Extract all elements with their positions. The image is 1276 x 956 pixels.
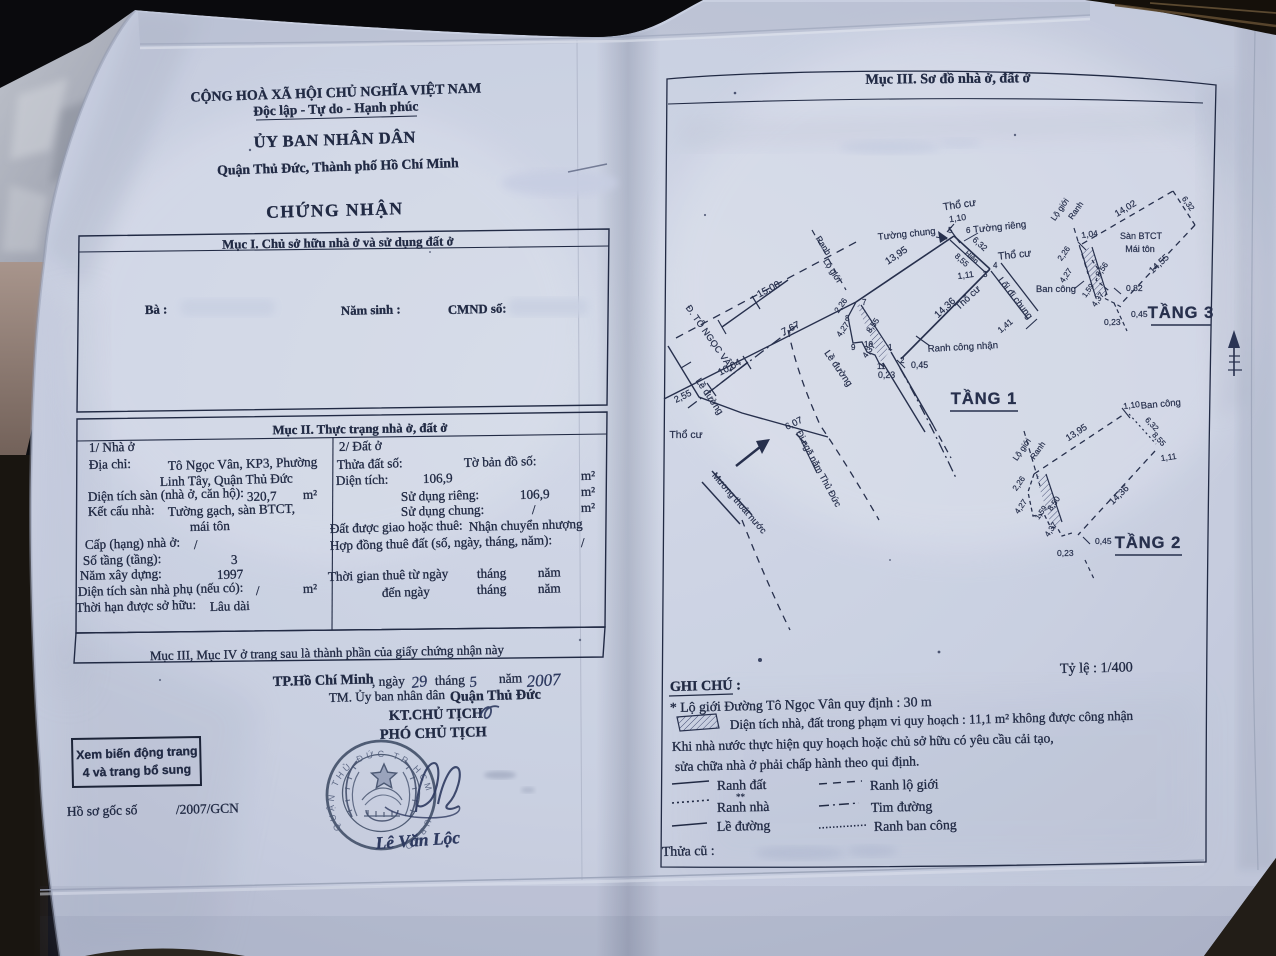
svg-text:Lâu dài: Lâu dài <box>210 598 251 614</box>
svg-text:Thửa đất số:: Thửa đất số: <box>337 455 403 472</box>
svg-text:TP.Hồ Chí Minh: TP.Hồ Chí Minh <box>273 671 374 690</box>
svg-text:m²: m² <box>581 484 596 499</box>
svg-text:3: 3 <box>231 552 238 567</box>
svg-text:Ranh đất: Ranh đất <box>717 777 767 793</box>
svg-text:TM. Ủy ban nhân dân: TM. Ủy ban nhân dân <box>329 687 446 705</box>
svg-text:Địa chỉ:: Địa chỉ: <box>89 456 132 472</box>
svg-text:2/ Đất ở: 2/ Đất ở <box>339 438 383 454</box>
svg-text:0,45: 0,45 <box>1095 536 1112 546</box>
svg-text:Mục III. Sơ đồ nhà ở, đất ở: Mục III. Sơ đồ nhà ở, đất ở <box>865 70 1030 87</box>
svg-text:m²: m² <box>581 500 596 515</box>
svg-text:0,82: 0,82 <box>1126 283 1143 293</box>
svg-text:GHI CHÚ :: GHI CHÚ : <box>670 676 741 695</box>
svg-text:Mái tôn: Mái tôn <box>1125 244 1155 254</box>
svg-text:Hồ sơ gốc số: Hồ sơ gốc số <box>67 802 138 819</box>
svg-text:Ranh lộ giới: Ranh lộ giới <box>870 776 939 793</box>
svg-text:106,9: 106,9 <box>520 486 550 502</box>
svg-text:8: 8 <box>845 314 850 323</box>
svg-text:Tờ bản đồ số:: Tờ bản đồ số: <box>464 453 537 470</box>
svg-text:tháng: tháng <box>477 581 507 597</box>
svg-text:CHỨNG NHẬN: CHỨNG NHẬN <box>266 198 404 222</box>
svg-text:KT.CHỦ TỊCH: KT.CHỦ TỊCH <box>389 705 483 724</box>
svg-text:năm: năm <box>499 670 523 686</box>
svg-text:Thổ cư: Thổ cư <box>669 429 702 441</box>
svg-text:0,45: 0,45 <box>911 360 928 370</box>
svg-text:Quận Thủ Đức: Quận Thủ Đức <box>450 687 541 705</box>
svg-text:TẦNG 1: TẦNG 1 <box>951 389 1018 408</box>
svg-text:10: 10 <box>864 340 873 349</box>
svg-text:5: 5 <box>948 226 953 235</box>
svg-text:Năm xây dựng:: Năm xây dựng: <box>80 566 162 583</box>
svg-text:1: 1 <box>888 343 893 352</box>
svg-text:9: 9 <box>851 343 856 352</box>
svg-text:TẦNG 2: TẦNG 2 <box>1115 533 1182 552</box>
svg-text:năm: năm <box>538 580 562 596</box>
svg-text:Lề đường: Lề đường <box>717 818 771 834</box>
svg-text:6: 6 <box>966 226 971 235</box>
svg-text:năm: năm <box>538 564 562 580</box>
svg-text:Nhận chuyển nhượng: Nhận chuyển nhượng <box>469 516 583 534</box>
svg-text:4: 4 <box>993 261 998 270</box>
svg-text:đến ngày: đến ngày <box>382 584 431 600</box>
svg-text:Ranh ban công: Ranh ban công <box>874 817 957 834</box>
svg-text:Thời hạn được sở hữu:: Thời hạn được sở hữu: <box>76 597 197 615</box>
svg-text:Diện tích:: Diện tích: <box>336 472 389 488</box>
svg-text:Tỷ lệ : 1/400: Tỷ lệ : 1/400 <box>1060 659 1133 677</box>
svg-text:1/ Nhà ở: 1/ Nhà ở <box>89 439 136 455</box>
svg-text:7: 7 <box>862 298 867 307</box>
svg-text:m²: m² <box>303 487 318 502</box>
svg-text:Ban công: Ban công <box>1036 284 1076 295</box>
svg-text:, ngày: , ngày <box>372 673 406 689</box>
svg-text:TẦNG 3: TẦNG 3 <box>1148 303 1215 322</box>
svg-text:Tim đường: Tim đường <box>871 799 933 815</box>
svg-text:Năm sinh :: Năm sinh : <box>341 302 401 318</box>
svg-text:Thời gian thuê từ ngày: Thời gian thuê từ ngày <box>328 566 449 584</box>
svg-text:Sử dụng chung:: Sử dụng chung: <box>401 502 485 519</box>
svg-text:Sàn BTCT: Sàn BTCT <box>1120 231 1163 241</box>
svg-text:**: ** <box>736 792 746 802</box>
svg-text:Thửa cũ :: Thửa cũ : <box>662 843 715 859</box>
svg-text:0,45: 0,45 <box>1131 309 1148 319</box>
svg-text:/2007/GCN: /2007/GCN <box>176 800 240 817</box>
svg-text:CMND số:: CMND số: <box>448 301 507 317</box>
svg-text:Cấp (hạng) nhà ở:: Cấp (hạng) nhà ở: <box>85 535 181 552</box>
svg-text:mái tôn: mái tôn <box>190 518 231 534</box>
svg-text:Mục II. Thực trạng nhà ở, đất: Mục II. Thực trạng nhà ở, đất ở <box>272 421 447 437</box>
svg-text:tháng: tháng <box>435 672 466 688</box>
svg-text:0,23: 0,23 <box>1104 317 1121 327</box>
svg-text:m²: m² <box>581 468 596 483</box>
svg-text:m²: m² <box>303 581 318 596</box>
svg-text:Kết cấu nhà:: Kết cấu nhà: <box>88 502 155 519</box>
svg-text:PHÓ CHỦ TỊCH: PHÓ CHỦ TỊCH <box>380 723 487 743</box>
svg-text:Bà :: Bà : <box>145 302 168 317</box>
svg-text:tháng: tháng <box>477 565 507 581</box>
svg-text:0,23: 0,23 <box>1057 548 1074 558</box>
svg-text:106,9: 106,9 <box>423 470 453 486</box>
